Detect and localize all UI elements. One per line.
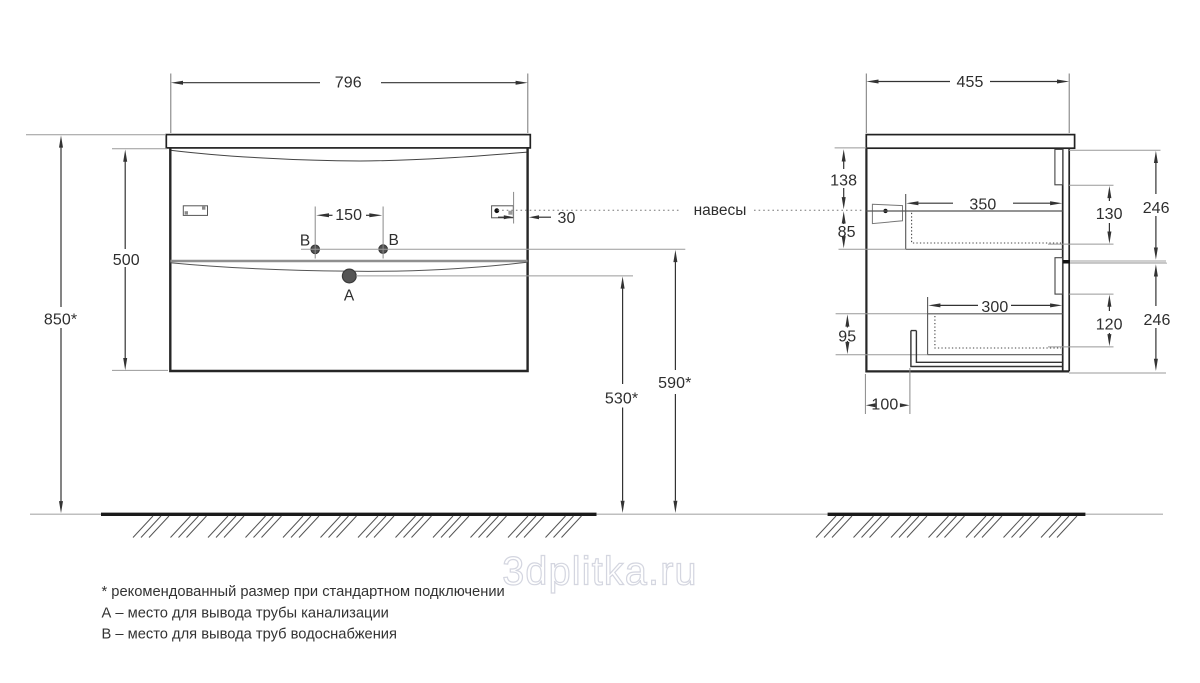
svg-text:3dplitka.ru: 3dplitka.ru bbox=[502, 550, 697, 594]
svg-text:530*: 530* bbox=[605, 390, 638, 407]
svg-text:150: 150 bbox=[335, 207, 362, 224]
svg-text:120: 120 bbox=[1096, 317, 1123, 334]
svg-text:А – место для вывода трубы кан: А – место для вывода трубы канализации bbox=[102, 605, 389, 621]
svg-text:95: 95 bbox=[838, 328, 856, 345]
svg-text:350: 350 bbox=[969, 196, 996, 213]
svg-text:B: B bbox=[300, 232, 310, 249]
svg-text:100: 100 bbox=[871, 397, 898, 414]
svg-text:* рекомендованный размер при с: * рекомендованный размер при стандартном… bbox=[102, 584, 505, 600]
svg-text:В – место для вывода труб водо: В – место для вывода труб водоснабжения bbox=[102, 627, 397, 643]
svg-text:455: 455 bbox=[957, 74, 984, 91]
svg-text:B: B bbox=[389, 232, 399, 249]
svg-text:85: 85 bbox=[838, 224, 856, 241]
svg-text:246: 246 bbox=[1144, 312, 1171, 329]
svg-text:246: 246 bbox=[1143, 200, 1170, 217]
svg-text:850*: 850* bbox=[44, 311, 77, 328]
svg-text:500: 500 bbox=[113, 252, 140, 269]
svg-text:A: A bbox=[344, 288, 355, 305]
svg-text:навесы: навесы bbox=[694, 202, 747, 219]
svg-text:130: 130 bbox=[1096, 206, 1123, 223]
svg-text:30: 30 bbox=[558, 210, 576, 227]
svg-text:138: 138 bbox=[830, 173, 857, 190]
svg-text:590*: 590* bbox=[658, 375, 691, 392]
svg-text:796: 796 bbox=[335, 75, 362, 92]
svg-text:300: 300 bbox=[981, 299, 1008, 316]
